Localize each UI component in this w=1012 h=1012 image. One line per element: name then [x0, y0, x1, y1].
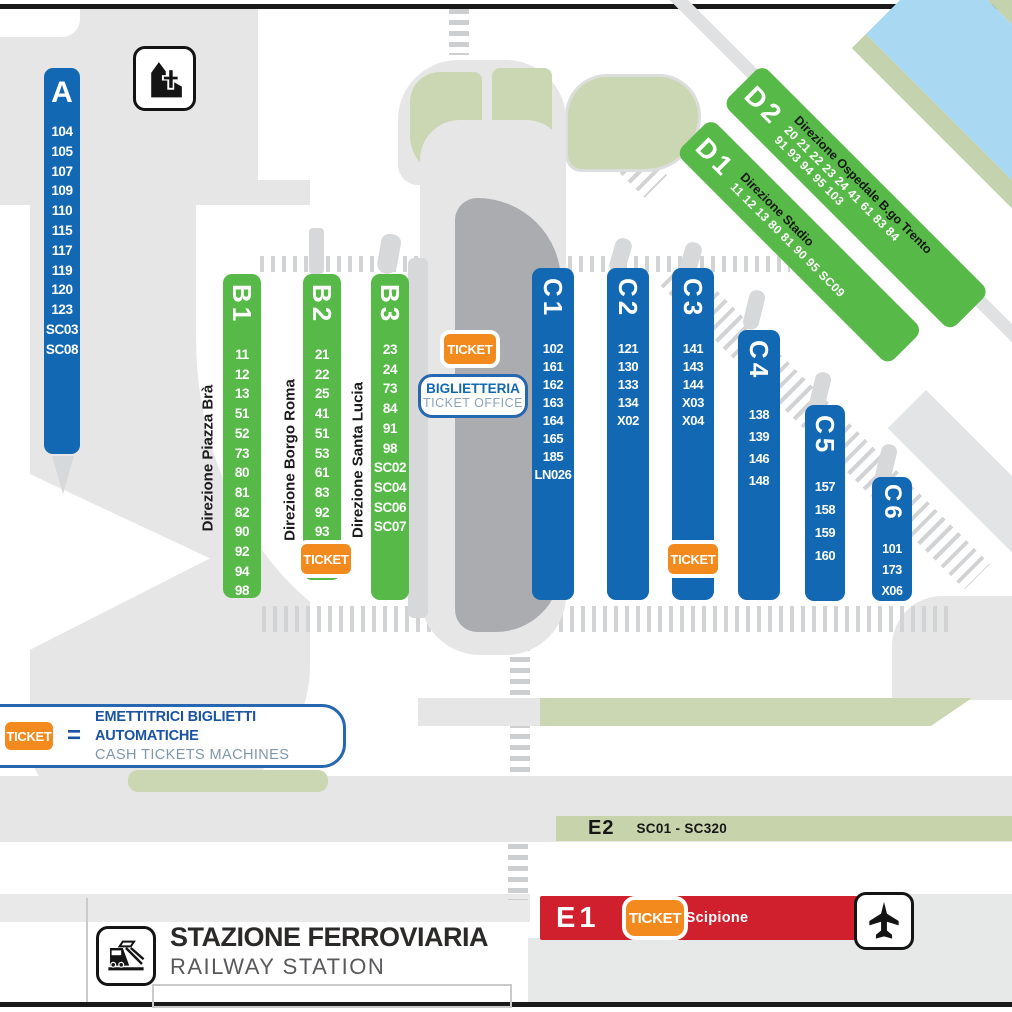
platform-c3-routes: 141143144X03X04	[672, 340, 714, 430]
direction-label-b3: Direzione Santa Lucia	[350, 382, 367, 538]
route-number: SC04	[371, 478, 409, 498]
route-number: 148	[738, 470, 780, 492]
route-number: 41	[303, 404, 341, 424]
platform-c2-label: C2	[615, 278, 641, 319]
plaza-top-left	[0, 9, 258, 205]
legend: TICKET = EMETTITRICI BIGLIETTI AUTOMATIC…	[0, 704, 346, 768]
route-number: X03	[672, 394, 714, 412]
route-number: SC06	[371, 498, 409, 518]
route-number: 98	[223, 581, 261, 601]
route-number: 11	[223, 345, 261, 365]
route-number: 165	[532, 430, 574, 448]
ticket-machine-badge-office: TICKET	[440, 330, 500, 368]
route-number: SC03	[44, 320, 80, 340]
platform-c4: C4 138139146148	[738, 330, 780, 600]
route-number: 141	[672, 340, 714, 358]
platform-b2: B2 2122254151536183929397	[303, 274, 341, 580]
legend-ticket-badge: TICKET	[1, 718, 57, 754]
platform-c5-routes: 157158159160	[805, 475, 845, 567]
platform-b2-label: B2	[309, 284, 335, 325]
platform-d2-label: D2	[738, 80, 790, 132]
route-number: 138	[738, 404, 780, 426]
route-number: 24	[371, 360, 409, 380]
platform-c5: C5 157158159160	[805, 405, 845, 601]
ticket-badge-label: TICKET	[303, 552, 348, 567]
route-number: 120	[44, 280, 80, 300]
platform-a-routes: 104105107109110115117119120123SC03SC08	[44, 122, 80, 360]
platform-c1-label: C1	[540, 278, 566, 319]
platform-tip-c4	[741, 289, 766, 332]
route-number: 22	[303, 365, 341, 385]
legend-text-italian: EMETTITRICI BIGLIETTI AUTOMATICHE	[95, 708, 343, 746]
route-number: 92	[303, 503, 341, 523]
ticket-office-italian: BIGLIETTERIA	[421, 381, 525, 396]
legend-text-english: CASH TICKETS MACHINES	[95, 746, 343, 765]
ticket-office-pill: BIGLIETTERIA TICKET OFFICE	[418, 374, 528, 418]
route-number: 61	[303, 463, 341, 483]
platform-b1-label: B1	[229, 284, 255, 325]
crosswalk-top	[449, 9, 469, 55]
church-icon	[133, 46, 196, 111]
route-number: 185	[532, 448, 574, 466]
route-number: 130	[607, 358, 649, 376]
route-number: 110	[44, 201, 80, 221]
ticket-badge-label: TICKET	[6, 729, 51, 744]
route-number: 13	[223, 384, 261, 404]
route-number: 144	[672, 376, 714, 394]
platform-c5-label: C5	[812, 415, 838, 456]
route-number: SC08	[44, 340, 80, 360]
route-number: 121	[607, 340, 649, 358]
platform-e2: E2 SC01 - SC320	[556, 816, 1012, 841]
platform-c4-label: C4	[746, 340, 772, 381]
ticket-office-english: TICKET OFFICE	[421, 396, 525, 410]
route-number: 117	[44, 241, 80, 261]
route-number: X06	[872, 581, 912, 602]
platform-c4-routes: 138139146148	[738, 404, 780, 492]
route-number: LN026	[532, 466, 574, 484]
platform-e2-range: SC01 - SC320	[636, 821, 727, 836]
route-number: 159	[805, 521, 845, 544]
platform-a: A 104105107109110115117119120123SC03SC08	[44, 68, 80, 454]
route-number: 162	[532, 376, 574, 394]
route-number: SC02	[371, 458, 409, 478]
platform-e2-label: E2	[588, 817, 614, 840]
route-number: 123	[44, 300, 80, 320]
route-number: 98	[371, 439, 409, 459]
direction-label-b2: Direzione Borgo Roma	[282, 379, 299, 541]
station-map: A 104105107109110115117119120123SC03SC08…	[0, 0, 1012, 1012]
median-strip	[540, 698, 972, 726]
route-number: 105	[44, 142, 80, 162]
median-stub	[418, 698, 540, 726]
ticket-machine-badge-e1: TICKET	[622, 896, 688, 940]
road-band-station	[0, 894, 530, 922]
road-edge-line	[86, 898, 88, 1002]
platform-b3-routes: 232473849198SC02SC04SC06SC07	[371, 340, 409, 537]
platform-c6-label: C6	[880, 484, 904, 523]
route-number: 21	[303, 345, 341, 365]
route-number: 104	[44, 122, 80, 142]
train-glyph	[102, 932, 150, 980]
airplane-glyph	[862, 899, 906, 943]
ticket-machine-badge-b2: TICKET	[297, 540, 355, 578]
platform-b1: B1 11121351527380818290929498	[223, 274, 261, 598]
route-number: 161	[532, 358, 574, 376]
route-number: 134	[607, 394, 649, 412]
route-number: 133	[607, 376, 649, 394]
platform-b3-label: B3	[377, 284, 403, 325]
route-number: 84	[371, 399, 409, 419]
station-title: STAZIONE FERROVIARIA	[170, 922, 488, 953]
platform-e1-label: E1	[556, 902, 599, 935]
route-number: 83	[303, 483, 341, 503]
ticket-badge-label: TICKET	[447, 342, 492, 357]
route-number: 143	[672, 358, 714, 376]
platform-b3: B3 232473849198SC02SC04SC06SC07	[371, 274, 409, 600]
route-number: 92	[223, 542, 261, 562]
route-number: 109	[44, 181, 80, 201]
platform-strip	[408, 258, 428, 618]
route-number: 52	[223, 424, 261, 444]
route-number: 173	[872, 560, 912, 581]
route-number: 73	[223, 444, 261, 464]
route-number: 139	[738, 426, 780, 448]
platform-tip-b2	[309, 228, 324, 274]
hatch-bottom	[262, 606, 952, 632]
route-number: 81	[223, 483, 261, 503]
legend-equals: =	[67, 722, 81, 750]
platform-c6: C6 101173X06	[872, 477, 912, 601]
route-number: 80	[223, 463, 261, 483]
route-number: 51	[303, 424, 341, 444]
platform-c2-routes: 121130133134X02	[607, 340, 649, 430]
legend-under-strip	[128, 770, 328, 792]
platform-c6-routes: 101173X06	[872, 539, 912, 602]
train-icon	[96, 926, 156, 986]
route-number: 23	[371, 340, 409, 360]
route-number: X02	[607, 412, 649, 430]
direction-label-b1: Direzione Piazza Brà	[200, 385, 217, 532]
route-number: 164	[532, 412, 574, 430]
route-number: 158	[805, 498, 845, 521]
station-building-outline	[152, 984, 512, 1008]
platform-c1-routes: 102161162163164165185LN026	[532, 340, 574, 484]
route-number: 94	[223, 562, 261, 582]
platform-e1: E1 199 – Scipione	[540, 896, 858, 940]
route-number: 107	[44, 162, 80, 182]
route-number: 160	[805, 544, 845, 567]
route-number: 53	[303, 444, 341, 464]
ticket-badge-label: TICKET	[670, 552, 715, 567]
route-number: 90	[223, 522, 261, 542]
platform-a-label: A	[44, 76, 80, 110]
route-number: 73	[371, 379, 409, 399]
route-number: 12	[223, 365, 261, 385]
route-number: 102	[532, 340, 574, 358]
platform-b1-routes: 11121351527380818290929498	[223, 345, 261, 601]
road-notch	[0, 9, 80, 37]
crosswalk-bottom	[508, 844, 528, 900]
station-subtitle: RAILWAY STATION	[170, 954, 385, 980]
route-number: 25	[303, 384, 341, 404]
route-number: 115	[44, 221, 80, 241]
route-number: 101	[872, 539, 912, 560]
platform-c2: C2 121130133134X02	[607, 268, 649, 600]
platform-b2-routes: 2122254151536183929397	[303, 345, 341, 562]
route-number: 119	[44, 261, 80, 281]
platform-c3-label: C3	[680, 278, 706, 319]
route-number: 146	[738, 448, 780, 470]
route-number: 91	[371, 419, 409, 439]
ticket-badge-label: TICKET	[629, 910, 681, 927]
church-glyph	[142, 56, 188, 102]
route-number: 157	[805, 475, 845, 498]
panel-below-e1	[528, 938, 1012, 1002]
route-number: 82	[223, 503, 261, 523]
airplane-icon	[854, 892, 914, 950]
route-number: X04	[672, 412, 714, 430]
route-number: SC07	[371, 517, 409, 537]
platform-d1-label: D1	[689, 132, 741, 184]
route-number: 163	[532, 394, 574, 412]
ticket-machine-badge-c3: TICKET	[664, 540, 722, 578]
platform-c1: C1 102161162163164165185LN026	[532, 268, 574, 600]
route-number: 51	[223, 404, 261, 424]
